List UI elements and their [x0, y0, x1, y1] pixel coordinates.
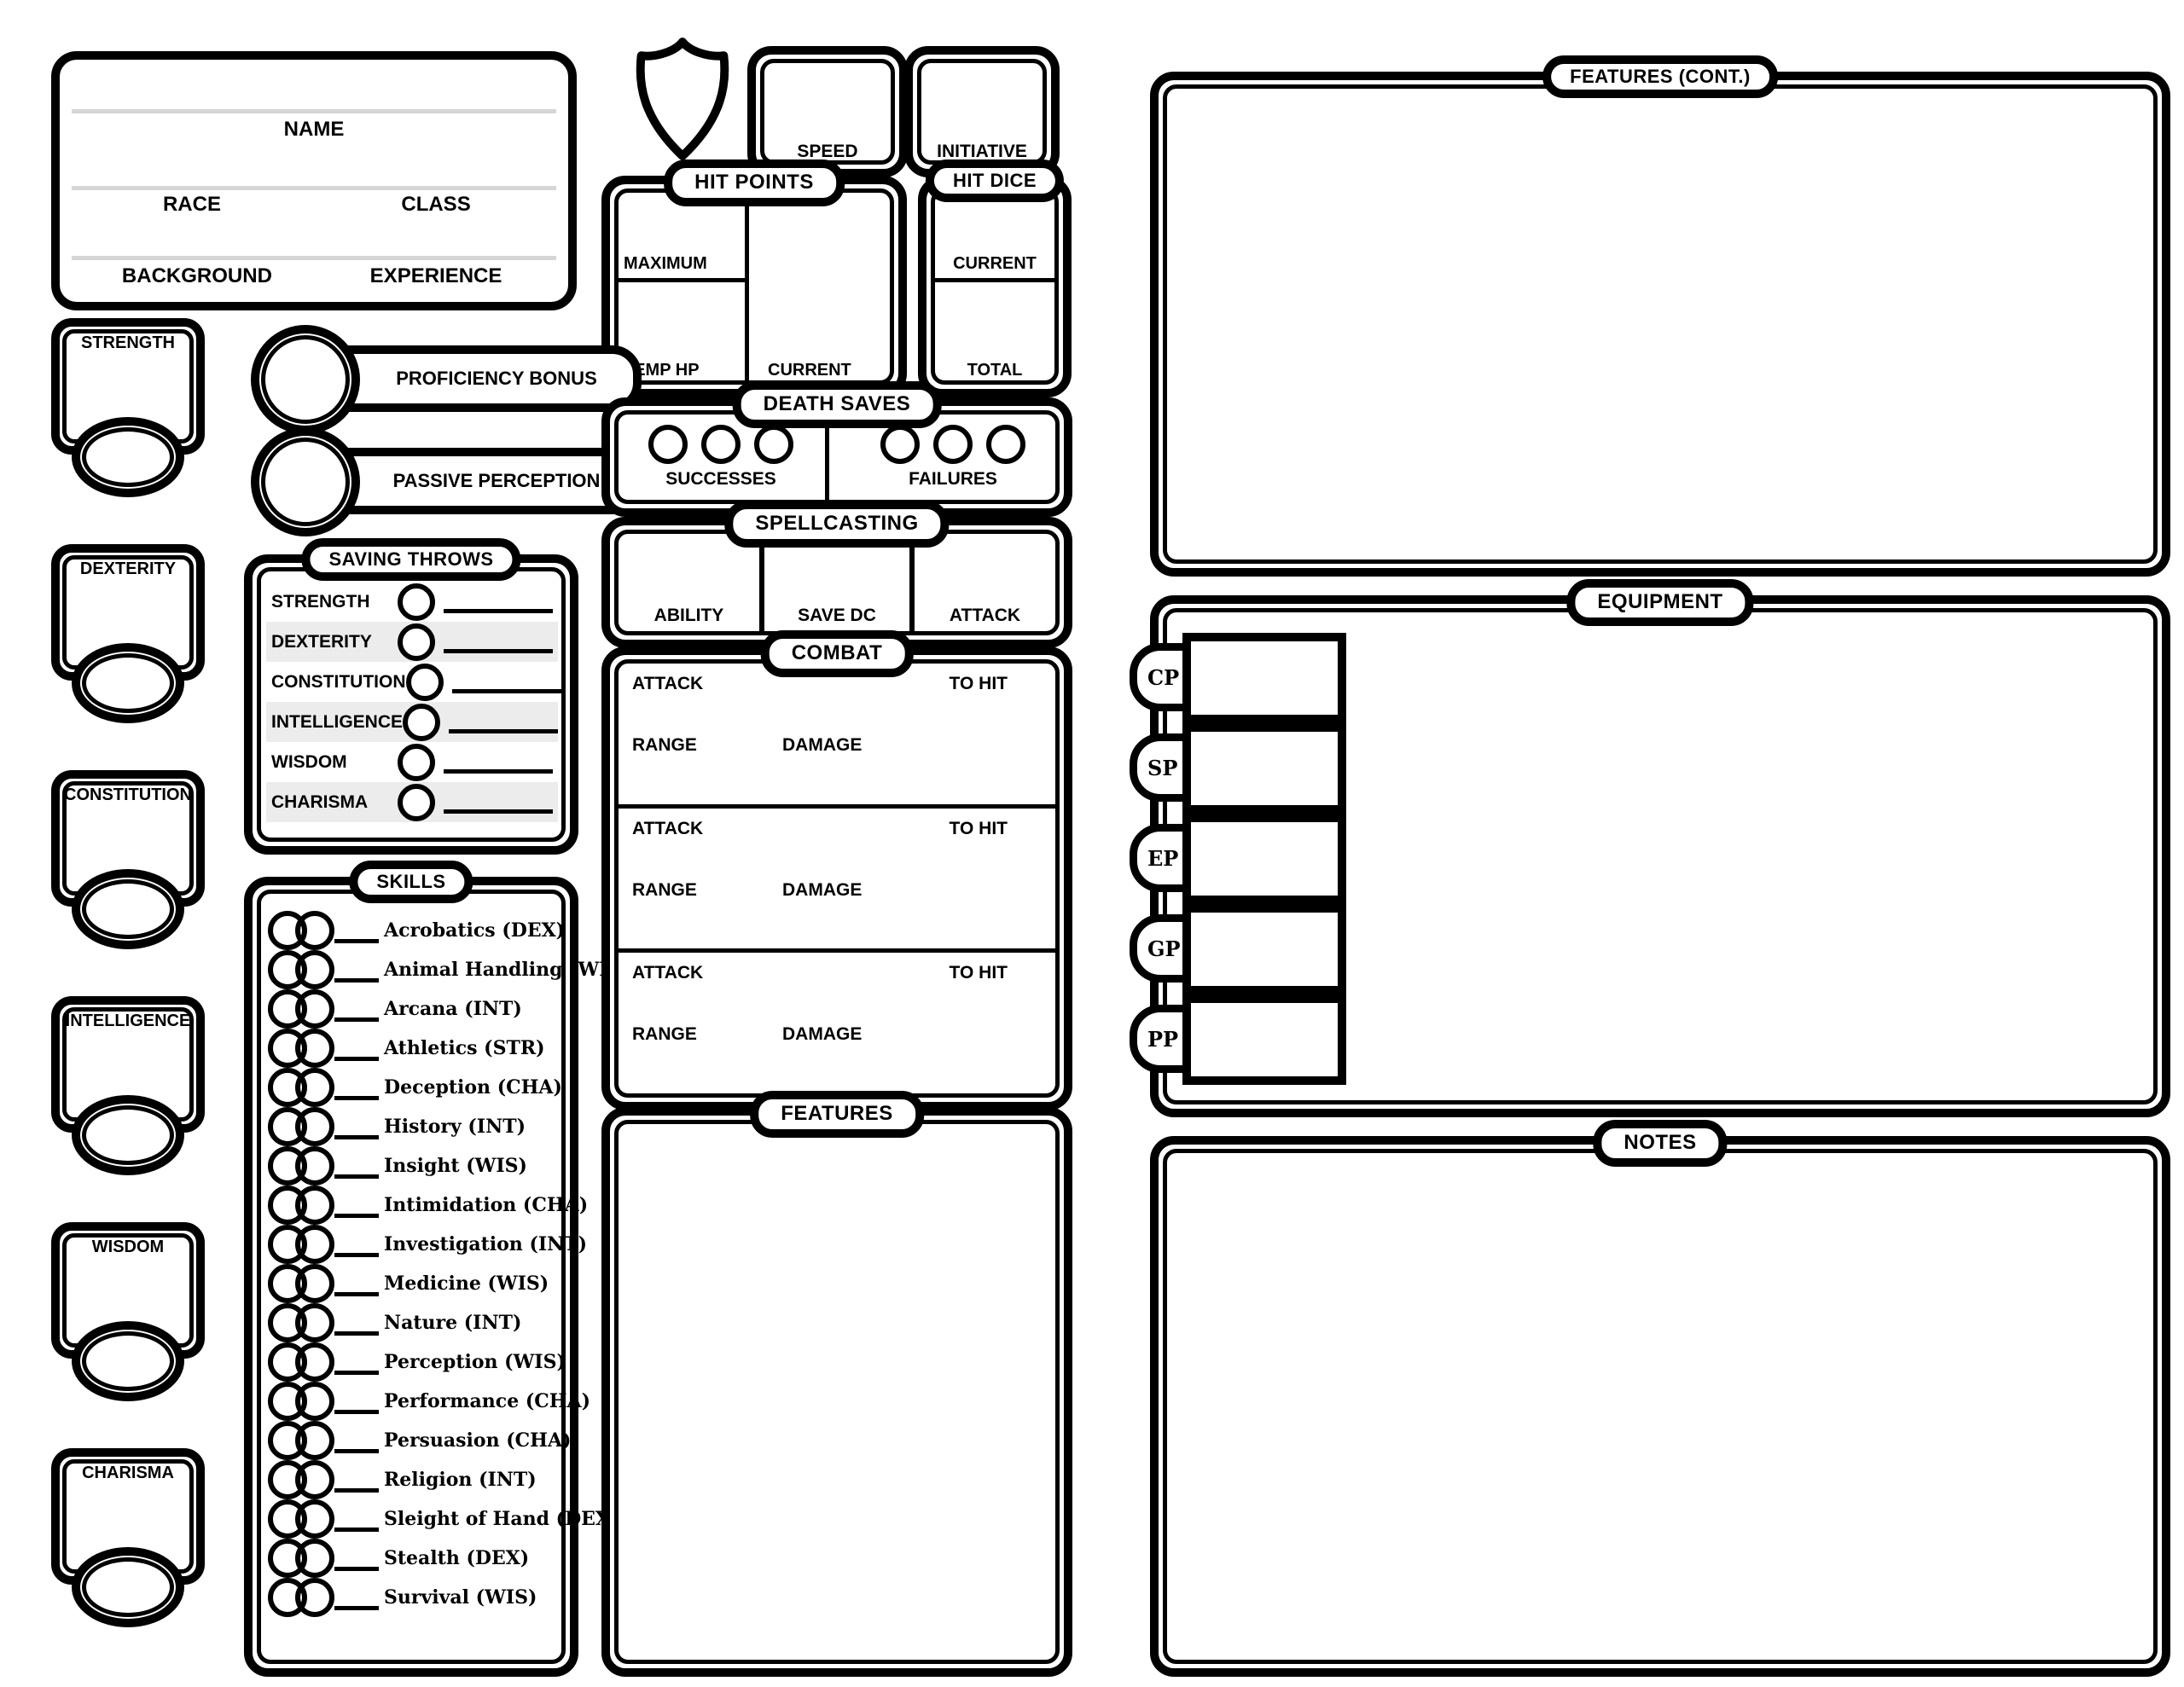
currency-column: CP SP EP GP PP — [1130, 633, 1385, 1085]
background-experience-write-line[interactable] — [72, 256, 556, 260]
saving-throw-modifier-line[interactable] — [452, 670, 561, 693]
character-sheet-page: NAME RACE CLASS BACKGROUND EXPERIENCE SP… — [0, 0, 2184, 1687]
experience-label: EXPERIENCE — [370, 264, 502, 288]
skill-modifier-line[interactable] — [334, 1389, 379, 1414]
hp-maximum-line — [617, 278, 745, 282]
skill-modifier-line[interactable] — [334, 958, 379, 983]
spell-attack-label: ATTACK — [915, 606, 1055, 626]
skill-row: Survival (WIS) — [268, 1578, 561, 1617]
skill-label: Stealth (DEX) — [384, 1547, 529, 1569]
skill-label: Intimidation (CHA) — [384, 1194, 588, 1216]
ability-modifier-field[interactable] — [72, 643, 184, 723]
expertise-circle-icon[interactable] — [295, 1186, 334, 1225]
expertise-circle-icon[interactable] — [295, 1146, 334, 1186]
saving-throw-proficiency-circle[interactable] — [398, 744, 435, 781]
saving-throw-label: INTELLIGENCE — [271, 712, 403, 733]
skill-label: Investigation (INT) — [384, 1233, 587, 1255]
expertise-circle-icon[interactable] — [295, 1539, 334, 1578]
skill-modifier-line[interactable] — [334, 1154, 379, 1179]
spell-ability-label: ABILITY — [619, 606, 759, 626]
skill-row: Performance (CHA) — [268, 1382, 561, 1421]
skills-box: SKILLS Acrobatics (DEX) Animal Handling … — [244, 877, 578, 1677]
ability-label: WISDOM — [60, 1238, 196, 1257]
currency-row: GP — [1130, 904, 1385, 977]
expertise-circle-icon[interactable] — [295, 1342, 334, 1382]
skill-proficiency-circles — [268, 1264, 334, 1303]
notes-box[interactable]: NOTES — [1150, 1136, 2170, 1677]
skill-label: Perception (WIS) — [384, 1351, 566, 1373]
hp-maximum-label: MAXIMUM — [624, 254, 707, 274]
equipment-title: EQUIPMENT — [1566, 579, 1753, 626]
ability-scores-column: STRENGTH DEXTERITY CONSTITUTION INTELLIG… — [51, 318, 205, 1674]
ability-box: WISDOM — [51, 1222, 205, 1394]
failure-circle-icon[interactable] — [986, 425, 1025, 464]
skill-modifier-line[interactable] — [334, 1429, 379, 1453]
saving-throw-label: WISDOM — [271, 752, 398, 773]
range-label: RANGE — [632, 1024, 697, 1045]
skill-row: Persuasion (CHA) — [268, 1421, 561, 1460]
skill-label: Deception (CHA) — [384, 1076, 562, 1099]
expertise-circle-icon[interactable] — [295, 1382, 334, 1421]
character-info-box[interactable]: NAME RACE CLASS BACKGROUND EXPERIENCE — [51, 51, 577, 310]
ability-box: DEXTERITY — [51, 544, 205, 716]
hit-dice-current-label: CURRENT — [926, 254, 1063, 274]
skill-row: Deception (CHA) — [268, 1068, 561, 1107]
saving-throws-title: SAVING THROWS — [301, 538, 520, 581]
skill-modifier-line[interactable] — [334, 1036, 379, 1061]
range-label: RANGE — [632, 735, 697, 756]
notes-title: NOTES — [1593, 1120, 1727, 1167]
features-continued-title: FEATURES (CONT.) — [1542, 55, 1778, 98]
saving-throw-row: DEXTERITY — [266, 622, 558, 662]
saving-throw-row: CHARISMA — [266, 782, 558, 822]
skill-modifier-line[interactable] — [334, 1115, 379, 1139]
features-box[interactable]: FEATURES — [601, 1107, 1072, 1677]
hit-dice-title: HIT DICE — [926, 159, 1064, 202]
skill-label: Insight (WIS) — [384, 1155, 527, 1177]
skill-modifier-line[interactable] — [334, 1586, 379, 1610]
skill-label: Nature (INT) — [384, 1312, 521, 1334]
saving-throw-proficiency-circle[interactable] — [398, 784, 435, 821]
skill-row: Medicine (WIS) — [268, 1264, 561, 1303]
expertise-circle-icon[interactable] — [295, 1068, 334, 1107]
saving-throw-row: CONSTITUTION — [266, 662, 558, 702]
passive-perception-badge: PASSIVE PERCEPTION — [251, 427, 618, 538]
saving-throw-modifier-line[interactable] — [444, 751, 553, 774]
death-saves-title: DEATH SAVES — [733, 381, 942, 428]
ability-label: CONSTITUTION — [60, 786, 196, 805]
skill-proficiency-circles — [268, 1421, 334, 1460]
ability-box: CONSTITUTION — [51, 770, 205, 942]
saving-throw-modifier-line[interactable] — [444, 590, 553, 613]
skill-proficiency-circles — [268, 1342, 334, 1382]
skills-title: SKILLS — [349, 861, 473, 903]
skill-modifier-line[interactable] — [334, 1075, 379, 1100]
skill-row: History (INT) — [268, 1107, 561, 1146]
saving-throw-modifier-line[interactable] — [444, 791, 553, 814]
hit-points-title: HIT POINTS — [664, 159, 845, 206]
currency-row: CP — [1130, 633, 1385, 706]
skill-proficiency-circles — [268, 1499, 334, 1539]
attack-label: ATTACK — [632, 963, 703, 983]
speed-field[interactable]: SPEED — [747, 46, 908, 177]
ability-modifier-field[interactable] — [72, 1095, 184, 1175]
combat-title: COMBAT — [761, 630, 914, 677]
failure-circle-icon[interactable] — [933, 425, 973, 464]
skill-proficiency-circles — [268, 1146, 334, 1186]
success-circle-icon[interactable] — [648, 425, 688, 464]
skill-modifier-line[interactable] — [334, 1468, 379, 1493]
death-saves-box: DEATH SAVES SUCCESSES FAILURES — [601, 397, 1072, 517]
proficiency-bonus-field[interactable] — [251, 325, 360, 434]
initiative-field[interactable]: INITIATIVE — [904, 46, 1060, 177]
spell-attack-field[interactable]: ATTACK — [915, 534, 1055, 631]
skill-modifier-line[interactable] — [334, 1546, 379, 1571]
attack-entries: ATTACK TO HIT RANGE DAMAGE ATTACK TO HIT… — [619, 664, 1055, 1093]
currency-amount-field[interactable] — [1182, 814, 1346, 904]
saving-throw-label: CONSTITUTION — [271, 672, 406, 693]
saving-throw-proficiency-circle[interactable] — [398, 583, 435, 621]
expertise-circle-icon[interactable] — [295, 1264, 334, 1303]
hit-dice-total-label: TOTAL — [926, 361, 1063, 380]
skill-modifier-line[interactable] — [334, 1507, 379, 1532]
spell-save-dc-field[interactable]: SAVE DC — [759, 534, 915, 631]
combat-box: COMBAT ATTACK TO HIT RANGE DAMAGE ATTACK… — [601, 646, 1072, 1110]
class-label: CLASS — [401, 193, 470, 217]
skill-row: Investigation (INT) — [268, 1225, 561, 1264]
currency-label: GP — [1147, 936, 1181, 961]
skill-label: Performance (CHA) — [384, 1390, 590, 1412]
currency-row: EP — [1130, 814, 1385, 887]
currency-row: PP — [1130, 994, 1385, 1068]
saving-throw-row: STRENGTH — [266, 582, 558, 622]
skill-row: Athletics (STR) — [268, 1029, 561, 1068]
saving-throw-rows: STRENGTH DEXTERITY CONSTITUTION INTELLIG… — [266, 582, 558, 822]
skill-label: History (INT) — [384, 1116, 526, 1138]
skill-proficiency-circles — [268, 1460, 334, 1499]
currency-label: CP — [1147, 665, 1179, 690]
spell-save-dc-label: SAVE DC — [764, 606, 909, 626]
skill-proficiency-circles — [268, 1578, 334, 1617]
ability-label: INTELLIGENCE — [60, 1012, 196, 1031]
skill-proficiency-circles — [268, 911, 334, 950]
race-label: RACE — [163, 193, 221, 217]
currency-amount-field[interactable] — [1182, 904, 1346, 994]
expertise-circle-icon[interactable] — [295, 1460, 334, 1499]
skill-proficiency-circles — [268, 1029, 334, 1068]
attack-entry-field[interactable]: ATTACK TO HIT RANGE DAMAGE — [619, 948, 1055, 1093]
skill-proficiency-circles — [268, 1225, 334, 1264]
skill-proficiency-circles — [268, 1068, 334, 1107]
features-title: FEATURES — [750, 1091, 924, 1138]
attack-entry-field[interactable]: ATTACK TO HIT RANGE DAMAGE — [619, 804, 1055, 949]
failure-circle-icon[interactable] — [880, 425, 920, 464]
success-circle-icon[interactable] — [754, 425, 793, 464]
skill-label: Athletics (STR) — [384, 1037, 545, 1059]
skill-row: Stealth (DEX) — [268, 1539, 561, 1578]
failure-checkboxes — [880, 425, 1025, 464]
skill-label: Persuasion (CHA) — [384, 1429, 571, 1452]
hit-dice-box: HIT DICE CURRENT TOTAL — [918, 176, 1072, 397]
skill-proficiency-circles — [268, 950, 334, 989]
saving-throw-proficiency-circle[interactable] — [403, 704, 440, 741]
skill-proficiency-circles — [268, 989, 334, 1029]
skill-label: Arcana (INT) — [384, 998, 522, 1020]
skill-row: Intimidation (CHA) — [268, 1186, 561, 1225]
expertise-circle-icon[interactable] — [295, 911, 334, 950]
to-hit-label: TO HIT — [950, 674, 1008, 694]
expertise-circle-icon[interactable] — [295, 1421, 334, 1460]
saving-throw-row: WISDOM — [266, 742, 558, 782]
currency-row: SP — [1130, 723, 1385, 797]
currency-label: EP — [1147, 846, 1178, 871]
name-label: NAME — [284, 118, 345, 142]
skill-label: Religion (INT) — [384, 1469, 537, 1491]
skill-label: Animal Handling (WIS) — [384, 959, 630, 981]
skill-proficiency-circles — [268, 1186, 334, 1225]
ability-modifier-field[interactable] — [72, 417, 184, 497]
skill-label: Acrobatics (DEX) — [384, 919, 565, 942]
ability-label: DEXTERITY — [60, 559, 196, 579]
expertise-circle-icon[interactable] — [295, 1578, 334, 1617]
equipment-box[interactable]: EQUIPMENT CP SP EP GP PP — [1150, 595, 2170, 1117]
skill-modifier-line[interactable] — [334, 1350, 379, 1375]
currency-amount-field[interactable] — [1182, 994, 1346, 1085]
skill-proficiency-circles — [268, 1382, 334, 1421]
proficiency-bonus-badge: PROFICIENCY BONUS — [251, 325, 618, 436]
features-continued-box[interactable]: FEATURES (CONT.) — [1150, 72, 2170, 577]
spellcasting-title: SPELLCASTING — [724, 501, 949, 548]
passive-perception-field[interactable] — [251, 427, 360, 536]
skill-row: Animal Handling (WIS) — [268, 950, 561, 989]
ability-modifier-field[interactable] — [72, 869, 184, 949]
skill-modifier-line[interactable] — [334, 1193, 379, 1218]
hp-current-label: CURRENT — [768, 361, 851, 380]
saving-throw-modifier-line[interactable] — [444, 630, 553, 653]
damage-label: DAMAGE — [782, 735, 862, 756]
saving-throw-label: DEXTERITY — [271, 632, 398, 652]
race-class-write-line[interactable] — [72, 186, 556, 190]
expertise-circle-icon[interactable] — [295, 1499, 334, 1539]
skill-modifier-line[interactable] — [334, 997, 379, 1022]
skill-row: Acrobatics (DEX) — [268, 911, 561, 950]
attack-label: ATTACK — [632, 819, 703, 839]
skill-row: Insight (WIS) — [268, 1146, 561, 1186]
failures-label: FAILURES — [909, 469, 997, 490]
expertise-circle-icon[interactable] — [295, 1107, 334, 1146]
damage-label: DAMAGE — [782, 1024, 862, 1045]
spell-ability-field[interactable]: ABILITY — [619, 534, 759, 631]
skill-proficiency-circles — [268, 1539, 334, 1578]
background-label: BACKGROUND — [122, 264, 272, 288]
hit-dice-line — [933, 278, 1056, 282]
currency-label: SP — [1147, 756, 1177, 780]
currency-amount-field[interactable] — [1182, 723, 1346, 814]
saving-throw-proficiency-circle[interactable] — [406, 664, 444, 701]
saving-throw-modifier-line[interactable] — [449, 710, 558, 733]
range-label: RANGE — [632, 880, 697, 901]
ability-label: CHARISMA — [60, 1464, 196, 1483]
skill-row: Nature (INT) — [268, 1303, 561, 1342]
saving-throw-proficiency-circle[interactable] — [398, 623, 435, 661]
skill-label: Survival (WIS) — [384, 1586, 537, 1609]
hit-points-box: HIT POINTS MAXIMUM TEMP HP CURRENT — [601, 176, 907, 397]
expertise-circle-icon[interactable] — [295, 1303, 334, 1342]
ability-label: STRENGTH — [60, 333, 196, 353]
skill-row: Religion (INT) — [268, 1460, 561, 1499]
saving-throw-label: CHARISMA — [271, 792, 398, 813]
skill-proficiency-circles — [268, 1107, 334, 1146]
ability-box: INTELLIGENCE — [51, 996, 205, 1168]
skill-modifier-line[interactable] — [334, 1311, 379, 1336]
saving-throws-box: SAVING THROWS STRENGTH DEXTERITY CONSTIT… — [244, 554, 578, 855]
successes-label: SUCCESSES — [665, 469, 776, 490]
expertise-circle-icon[interactable] — [295, 989, 334, 1029]
ability-modifier-field[interactable] — [72, 1547, 184, 1627]
name-write-line[interactable] — [72, 109, 556, 113]
saving-throw-label: STRENGTH — [271, 592, 398, 612]
saving-throw-row: INTELLIGENCE — [266, 702, 558, 742]
success-circle-icon[interactable] — [701, 425, 741, 464]
hit-points-divider — [745, 191, 749, 382]
spellcasting-box: SPELLCASTING ABILITY SAVE DC ATTACK — [601, 517, 1072, 648]
skill-row: Perception (WIS) — [268, 1342, 561, 1382]
skill-proficiency-circles — [268, 1303, 334, 1342]
expertise-circle-icon[interactable] — [295, 950, 334, 989]
skill-label: Medicine (WIS) — [384, 1272, 549, 1295]
to-hit-label: TO HIT — [950, 819, 1008, 839]
attack-label: ATTACK — [632, 674, 703, 694]
success-checkboxes — [648, 425, 793, 464]
skill-modifier-line[interactable] — [334, 1232, 379, 1257]
ability-box: CHARISMA — [51, 1448, 205, 1620]
armor-class-shield-icon[interactable] — [630, 34, 735, 164]
currency-label: PP — [1147, 1027, 1178, 1052]
skill-row: Arcana (INT) — [268, 989, 561, 1029]
expertise-circle-icon[interactable] — [295, 1225, 334, 1264]
currency-amount-field[interactable] — [1182, 633, 1346, 723]
skill-rows: Acrobatics (DEX) Animal Handling (WIS) A… — [268, 911, 561, 1617]
spellcasting-cells: ABILITY SAVE DC ATTACK — [619, 534, 1055, 631]
damage-label: DAMAGE — [782, 880, 862, 901]
skill-row: Sleight of Hand (DEX) — [268, 1499, 561, 1539]
attack-entry-field[interactable]: ATTACK TO HIT RANGE DAMAGE — [619, 664, 1055, 804]
to-hit-label: TO HIT — [950, 963, 1008, 983]
skill-label: Sleight of Hand (DEX) — [384, 1508, 619, 1530]
skill-modifier-line[interactable] — [334, 919, 379, 943]
skill-modifier-line[interactable] — [334, 1272, 379, 1296]
ability-modifier-field[interactable] — [72, 1321, 184, 1401]
expertise-circle-icon[interactable] — [295, 1029, 334, 1068]
ability-box: STRENGTH — [51, 318, 205, 490]
